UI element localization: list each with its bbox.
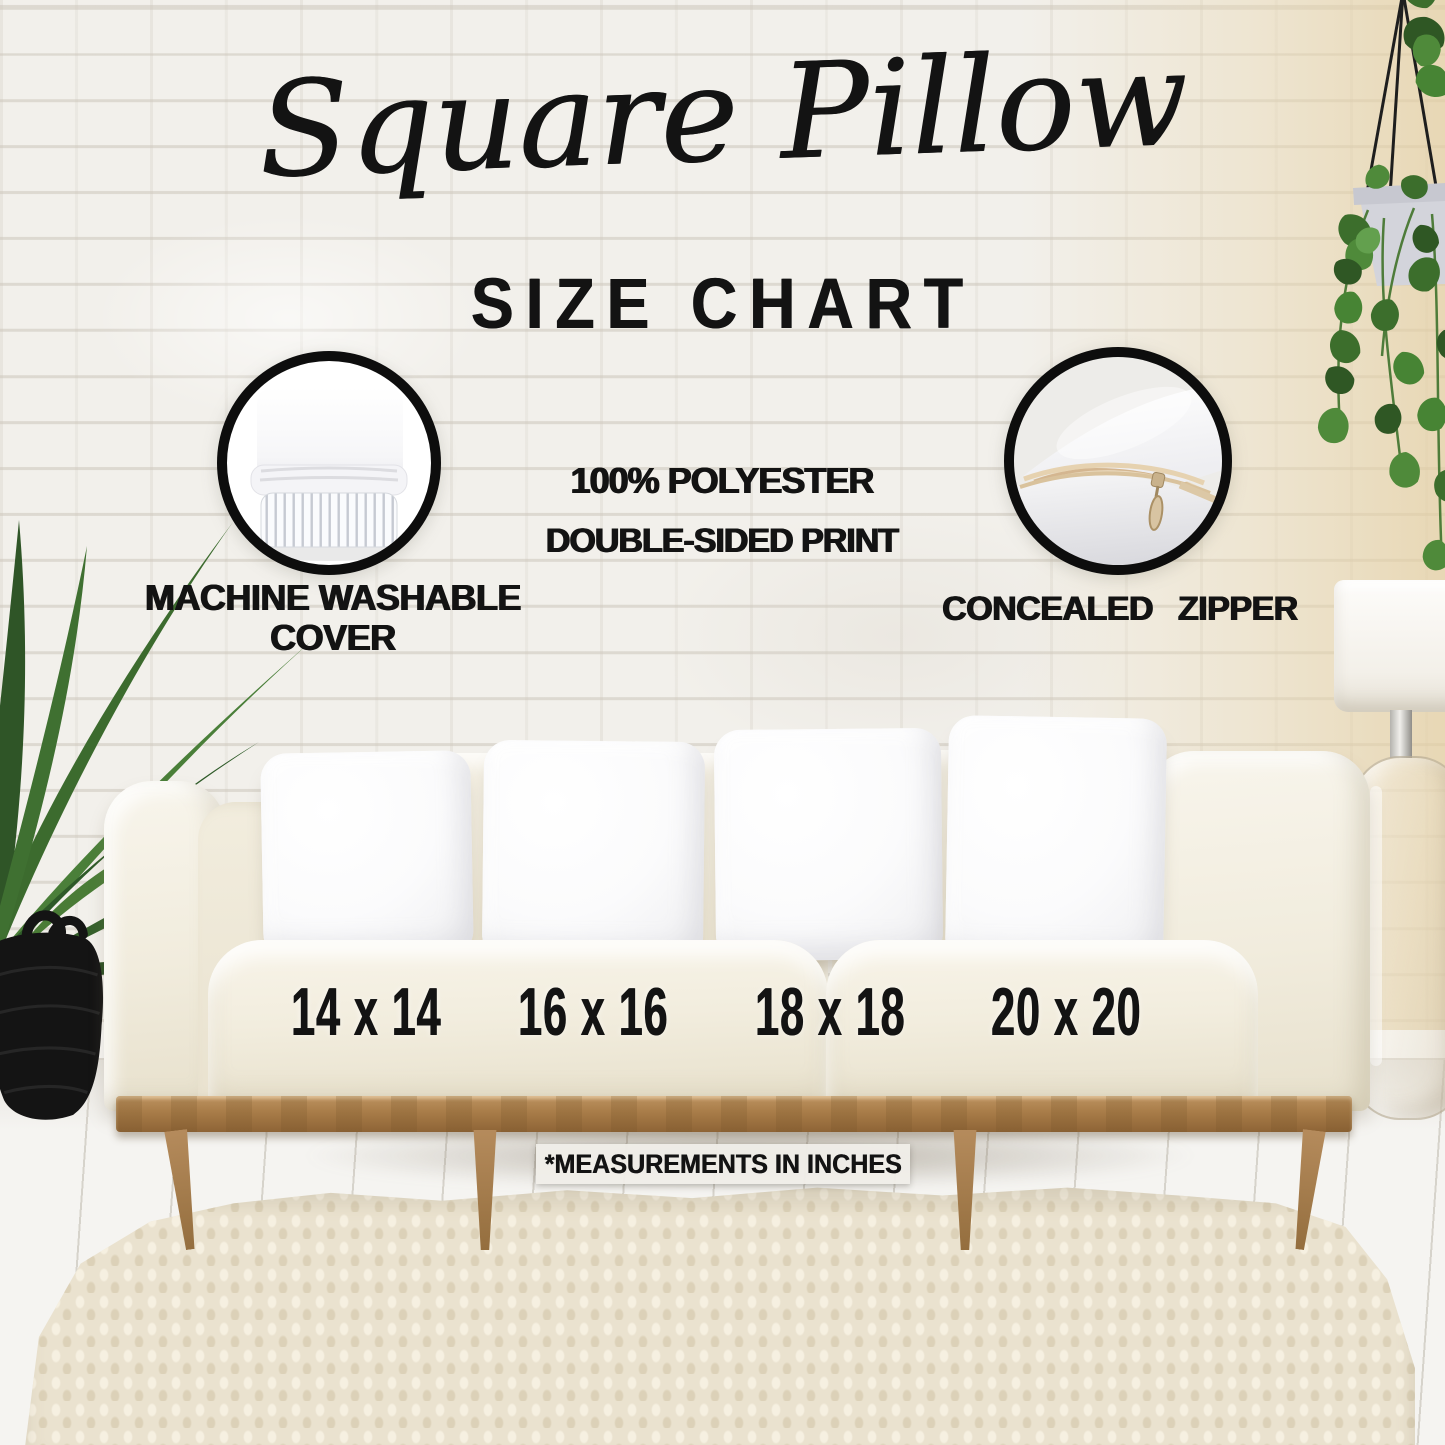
concealed-zipper-badge-icon <box>1004 347 1232 575</box>
caption-line: COVER <box>145 618 521 658</box>
lamp-glass-highlight <box>1370 786 1382 1066</box>
machine-washable-badge-icon <box>217 351 441 575</box>
shag-rug <box>25 1185 1415 1445</box>
caption-machine-washable: MACHINE WASHABLE COVER <box>145 578 521 659</box>
feature-polyester: 100% POLYESTER <box>571 460 874 502</box>
pothos-leaves <box>1314 0 1445 573</box>
pillow-14x14 <box>260 750 474 960</box>
page-title: Square Pillow <box>255 14 1190 218</box>
sofa-wood-base <box>116 1096 1352 1132</box>
size-label-14x14: 14 x 14 <box>291 974 441 1052</box>
pillow-20x20 <box>945 715 1167 967</box>
footnote-bar: *MEASUREMENTS IN INCHES <box>536 1144 910 1184</box>
size-label-20x20: 20 x 20 <box>991 974 1141 1052</box>
size-label-18x18: 18 x 18 <box>755 974 905 1052</box>
caption-concealed-zipper: CONCEALED ZIPPER <box>942 590 1298 629</box>
pillow-16x16 <box>482 740 705 962</box>
footnote-text: *MEASUREMENTS IN INCHES <box>544 1149 901 1180</box>
page-subtitle: SIZE CHART <box>471 262 975 345</box>
feature-double-sided: DOUBLE-SIDED PRINT <box>546 522 898 561</box>
pillow-size-chart-infographic: 14 x 14 16 x 16 18 x 18 20 x 20 Square P… <box>0 0 1445 1445</box>
pillow-18x18 <box>714 728 943 961</box>
floor-lamp-neck <box>1390 710 1412 758</box>
caption-line: MACHINE WASHABLE <box>145 578 521 618</box>
size-label-16x16: 16 x 16 <box>518 974 668 1052</box>
